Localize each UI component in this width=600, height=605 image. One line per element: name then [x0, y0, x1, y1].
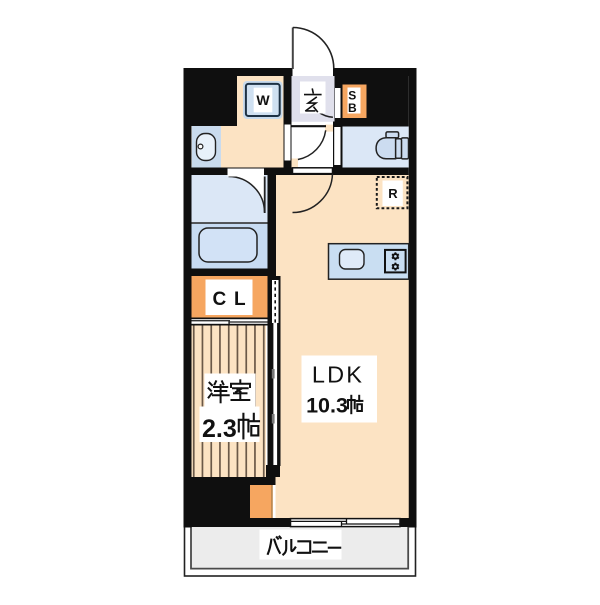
svg-text:W: W — [256, 92, 270, 108]
svg-text:2.3: 2.3 — [202, 415, 237, 443]
svg-text:10.3: 10.3 — [306, 394, 348, 418]
svg-text:LDK: LDK — [312, 362, 364, 388]
svg-text:L: L — [234, 289, 246, 310]
svg-text:B: B — [348, 101, 357, 115]
svg-text:R: R — [388, 186, 398, 201]
svg-text:C: C — [213, 289, 227, 310]
